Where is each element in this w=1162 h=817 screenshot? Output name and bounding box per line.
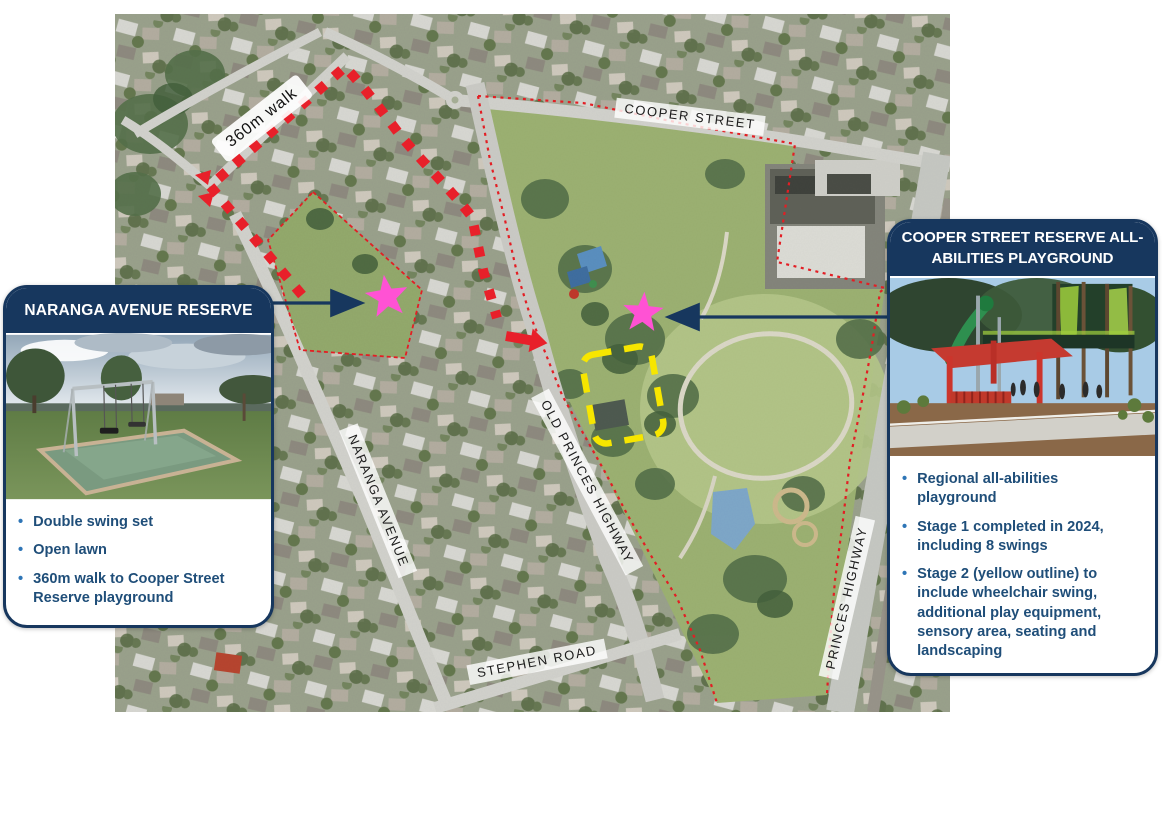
bullet-text: Stage 2 (yellow outline) to include whee…: [917, 565, 1141, 661]
cooper-callout-title-line2: ABILITIES PLAYGROUND: [890, 249, 1155, 270]
naranga-callout-title-text: NARANGA AVENUE RESERVE: [6, 302, 271, 320]
bullet-dot: •: [18, 541, 23, 560]
title-block-footer: SUTHERLAND SHIRE COUNCIL Dwg. No.: 18786…: [0, 712, 1162, 817]
naranga-callout-body: •Double swing set •Open lawn •360m walk …: [6, 501, 271, 627]
cooper-callout-title-line1: COOPER STREET RESERVE ALL-: [890, 228, 1155, 249]
bullet-text: Double swing set: [33, 513, 153, 532]
list-item: •Stage 1 completed in 2024, including 8 …: [902, 518, 1141, 557]
cooper-playground-photo: [890, 276, 1155, 458]
bullet-text: Stage 1 completed in 2024, including 8 s…: [917, 518, 1141, 557]
naranga-reserve-callout: NARANGA AVENUE RESERVE: [3, 285, 274, 628]
bullet-dot: •: [18, 513, 23, 532]
bullet-text: Regional all-abilities playground: [917, 470, 1141, 509]
bullet-dot: •: [902, 518, 907, 557]
naranga-reserve-photo: [6, 333, 271, 501]
bullet-text: 360m walk to Cooper Street Reserve playg…: [33, 570, 257, 609]
cooper-playground-callout: COOPER STREET RESERVE ALL- ABILITIES PLA…: [887, 219, 1158, 676]
list-item: •360m walk to Cooper Street Reserve play…: [18, 570, 257, 609]
plan-page: 360m walk COOPER STREET NARANGA AVENUE O…: [0, 0, 1162, 817]
list-item: •Open lawn: [18, 541, 257, 560]
bullet-dot: •: [902, 565, 907, 661]
list-item: •Regional all-abilities playground: [902, 470, 1141, 509]
list-item: •Double swing set: [18, 513, 257, 532]
bullet-text: Open lawn: [33, 541, 107, 560]
naranga-callout-title: NARANGA AVENUE RESERVE: [6, 288, 271, 333]
cooper-callout-title: COOPER STREET RESERVE ALL- ABILITIES PLA…: [890, 222, 1155, 276]
cooper-callout-body: •Regional all-abilities playground •Stag…: [890, 458, 1155, 676]
list-item: •Stage 2 (yellow outline) to include whe…: [902, 565, 1141, 661]
bullet-dot: •: [902, 470, 907, 509]
bullet-dot: •: [18, 570, 23, 609]
